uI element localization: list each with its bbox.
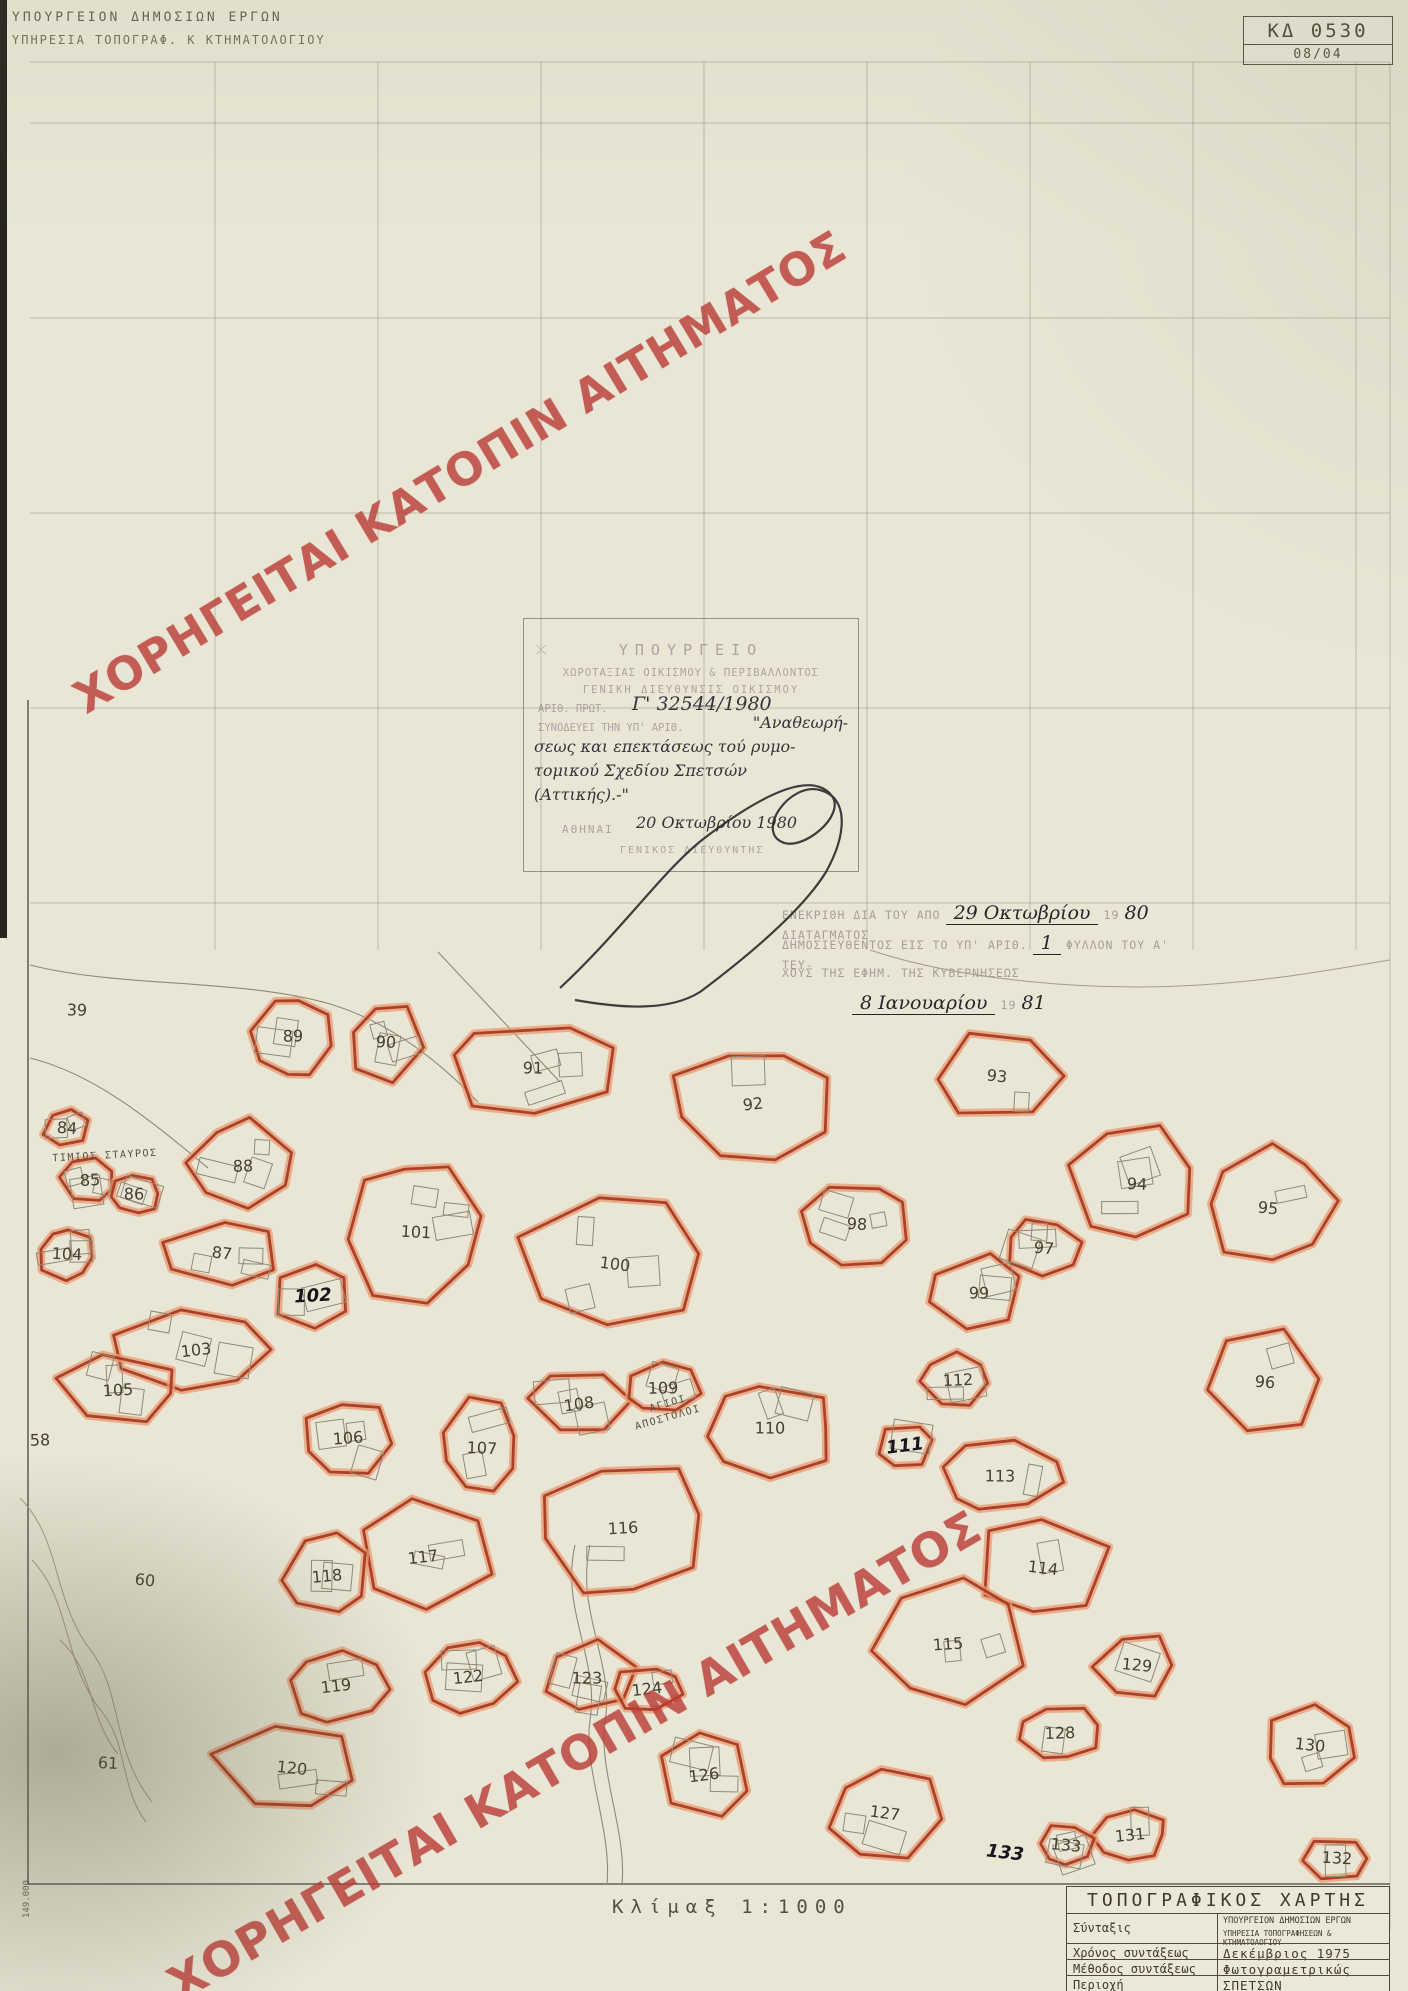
- building-outline: [1115, 1642, 1161, 1682]
- building-outline: [1023, 1464, 1042, 1497]
- building-outline: [278, 1769, 318, 1789]
- title-block-title: ΤΟΠΟΓΡΑΦΙΚΟΣ ΧΑΡΤΗΣ: [1067, 1887, 1389, 1916]
- building-outline: [689, 1747, 720, 1777]
- building-outline: [411, 1186, 438, 1208]
- map-drawing: [0, 0, 1408, 1991]
- building-outline: [1037, 1540, 1064, 1574]
- building-outline: [428, 1540, 464, 1561]
- building-outline: [463, 1451, 487, 1479]
- title-block: ΤΟΠΟΓΡΑΦΙΚΟΣ ΧΑΡΤΗΣ Σύνταξις ΥΠΟΥΡΓΕΙΟΝ …: [1066, 1886, 1390, 1991]
- building-outline: [862, 1820, 906, 1855]
- building-outline: [576, 1216, 594, 1245]
- block-outline-halo-100: [518, 1198, 699, 1325]
- building-outline: [525, 1080, 566, 1105]
- building-outline: [327, 1659, 364, 1681]
- building-outline: [445, 1663, 482, 1692]
- signature-stroke: [560, 785, 842, 1006]
- building-outline: [346, 1421, 366, 1441]
- building-outline: [196, 1157, 238, 1183]
- building-outline: [1266, 1343, 1294, 1369]
- row-value-area: ΣΠΕΤΣΩΝ: [1223, 1978, 1283, 1991]
- building-outline: [254, 1139, 270, 1154]
- row-label-area: Περιοχή: [1073, 1978, 1124, 1991]
- building-outline: [191, 1253, 212, 1273]
- building-outline: [244, 1157, 273, 1189]
- building-outline: [375, 1033, 401, 1066]
- row-label-syntaxis: Σύνταξις: [1073, 1921, 1131, 1935]
- building-outline: [843, 1813, 866, 1834]
- building-outline: [565, 1284, 595, 1314]
- building-outline: [302, 1279, 346, 1312]
- building-outline: [870, 1212, 887, 1228]
- building-outline: [731, 1056, 765, 1086]
- map-sheet: ΥΠΟΥΡΓΕΙΟΝ ΔΗΜΟΣΙΩΝ ΕΡΓΩΝ ΥΠΗΡΕΣΙΑ ΤΟΠΟΓ…: [0, 0, 1408, 1991]
- building-outline: [558, 1052, 582, 1077]
- row-label-method: Μέθοδος συντάξεως: [1073, 1962, 1196, 1976]
- building-outline: [1042, 1726, 1066, 1753]
- building-outline: [1302, 1752, 1323, 1771]
- building-outline: [981, 1262, 1016, 1296]
- block-outline-101: [348, 1167, 481, 1303]
- scan-edge: [0, 0, 7, 938]
- block-outline-halo-93: [938, 1033, 1064, 1113]
- building-outline: [531, 1049, 561, 1072]
- building-outline: [1275, 1185, 1307, 1203]
- building-outline: [710, 1776, 738, 1792]
- row-value-syntaxis-1: ΥΠΟΥΡΓΕΙΟΝ ΔΗΜΟΣΙΩΝ ΕΡΓΩΝ: [1223, 1916, 1351, 1926]
- sheet-border: [28, 62, 1390, 1930]
- building-outline: [981, 1634, 1006, 1658]
- building-outline: [1102, 1201, 1138, 1213]
- building-outline: [944, 1640, 961, 1662]
- block-outline-halo-95: [1211, 1144, 1338, 1260]
- building-outline: [1325, 1845, 1346, 1877]
- building-outline: [239, 1248, 263, 1264]
- block-outline-95: [1211, 1144, 1338, 1260]
- building-outline: [176, 1332, 212, 1367]
- building-outline: [819, 1217, 850, 1240]
- survey-grid: [30, 62, 1390, 950]
- building-outline: [587, 1546, 625, 1560]
- building-outline: [626, 1256, 660, 1288]
- building-outline: [316, 1419, 347, 1449]
- block-outline-halo-91: [454, 1028, 613, 1114]
- row-label-date: Χρόνος συντάξεως: [1073, 1946, 1189, 1960]
- building-outline: [322, 1562, 353, 1591]
- building-outline: [1120, 1146, 1161, 1186]
- block-outline-halo-110: [708, 1387, 827, 1479]
- building-outline: [273, 1018, 298, 1047]
